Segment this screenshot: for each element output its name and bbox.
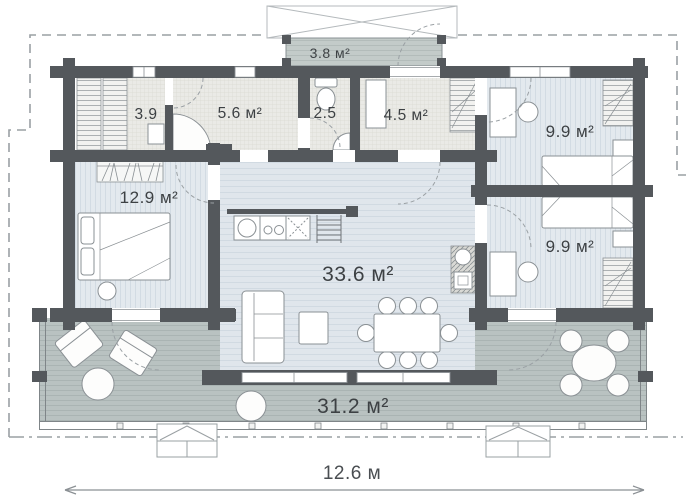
door-opening-bedroom1 [475,78,487,115]
dining-chair [400,352,417,369]
kitchen-rail-end [346,206,358,217]
door-opening-bedroom-left [208,165,220,200]
terrace-chair [607,374,629,396]
dining-chair [421,298,438,315]
entrance-steps [157,424,550,457]
door-opening-storage [165,78,173,105]
window [357,373,450,383]
coffee-table [299,312,328,344]
terrace-chair [560,330,582,352]
desk-chair [518,262,538,282]
label-vestibule: 4.5 м² [384,107,429,124]
label-living: 33.6 м² [322,263,394,286]
side-table [236,391,266,421]
label-bedroom-top-right: 9.9 м² [546,122,595,141]
floor-plan-page: 3.8 м² 3.9 5.6 м² 2.5 4.5 м² 9.9 м² 9.9 … [0,0,686,502]
door-opening-wc [298,118,310,148]
label-terrace: 31.2 м² [317,395,389,418]
window [242,373,347,383]
wall-bedroom-divider [471,185,653,197]
washing-machine [148,124,164,144]
desk-chair [518,102,538,122]
floor-plan: 3.8 м² 3.9 5.6 м² 2.5 4.5 м² 9.9 м² 9.9 … [0,0,686,502]
label-bedroom-left: 12.9 м² [120,188,179,207]
dining-chair [400,298,417,315]
dining-chair [441,325,458,342]
side-table [82,368,114,400]
label-storage: 3.9 [134,106,157,123]
wall-left [63,58,75,330]
label-porch: 3.8 м² [310,45,351,61]
door-opening-terrace-right [508,308,556,322]
dining-table [374,314,440,352]
window [235,67,255,77]
desk [490,88,516,137]
wardrobe [603,258,633,308]
hanger-rack [97,161,163,182]
fireplace [451,246,475,293]
dining-chair [421,352,438,369]
door-opening-hallway [240,150,268,162]
kitchen-rail [227,209,358,214]
dining-chair [358,325,375,342]
dimension-arrow: 12.6 м [65,463,644,494]
terrace-chair [560,374,582,396]
nightstand [613,231,635,247]
round-table [572,345,616,381]
vestibule-wardrobe [450,78,478,132]
dimension-label: 12.6 м [323,463,381,484]
porch-roof-outline [267,6,457,38]
bed-single [542,156,633,186]
door-opening-terrace-left [112,308,160,322]
wall-bottom-right [469,308,653,322]
desk [490,252,516,296]
nightstand [613,140,635,157]
wall-storage [165,105,173,150]
label-wc: 2.5 [313,105,336,122]
terrace-chair [607,330,629,352]
door-opening [333,150,355,162]
bed-double [78,213,170,280]
dining-chair [379,298,396,315]
hall-wardrobe [77,78,127,150]
label-hallway: 5.6 м² [218,105,263,122]
bedside-table [98,282,116,300]
pillow [81,217,94,244]
sofa [242,291,284,363]
wall-wc-east [350,78,360,150]
dining-chair [379,352,396,369]
door-opening-vestibule [398,150,440,162]
label-bedroom-bottom-right: 9.9 м² [546,237,595,256]
bed-single [542,197,633,228]
pillow [81,248,94,275]
porch-deck [282,35,446,67]
wardrobe [603,80,633,126]
door-opening-bedroom2 [475,205,487,243]
